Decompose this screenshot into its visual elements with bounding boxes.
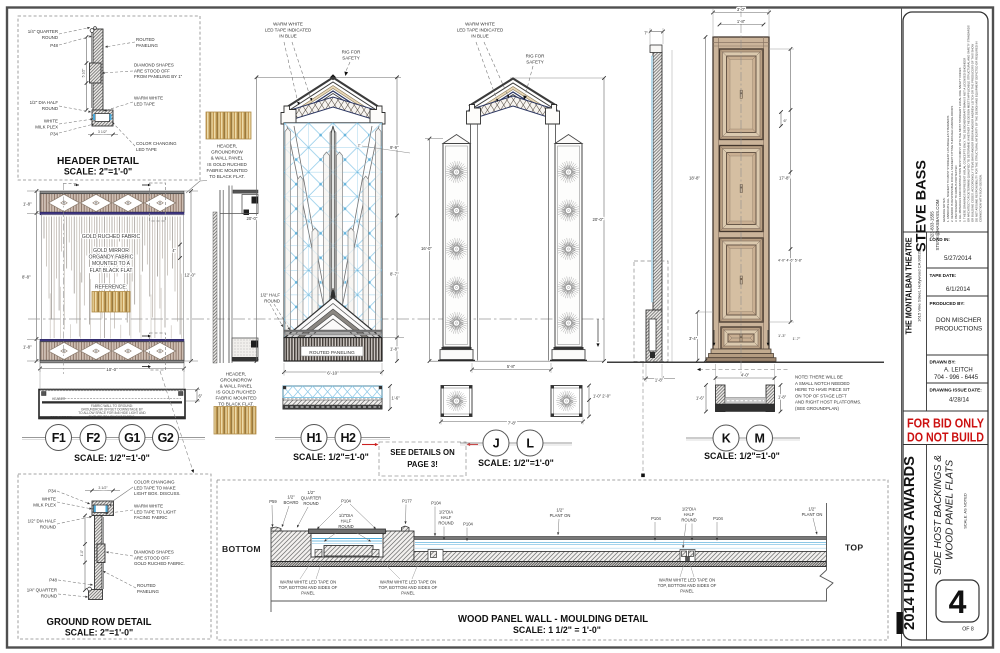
svg-text:1'-3": 1'-3"	[778, 333, 786, 338]
svg-text:WARM WHITE LED TAPE ON: WARM WHITE LED TAPE ON	[280, 580, 336, 585]
svg-text:ORGANDY FABRIC: ORGANDY FABRIC	[89, 255, 134, 261]
svg-text:P59: P59	[269, 499, 277, 504]
svg-text:WHITE: WHITE	[44, 119, 58, 124]
svg-text:ROUND: ROUND	[264, 298, 280, 303]
svg-text:TOP, BOTTOM AND SIDES OF: TOP, BOTTOM AND SIDES OF	[658, 583, 717, 588]
svg-text:TOP, BOTTOM AND SIDES OF: TOP, BOTTOM AND SIDES OF	[379, 585, 438, 590]
svg-text:8'-7": 8'-7"	[390, 272, 399, 277]
svg-text:WARM WHITE: WARM WHITE	[134, 504, 163, 509]
svg-text:DO NOT BUILD: DO NOT BUILD	[907, 430, 984, 445]
svg-text:ROUTED: ROUTED	[136, 37, 155, 42]
svg-text:3 1/2": 3 1/2"	[98, 130, 108, 134]
svg-text:K: K	[722, 431, 731, 445]
svg-text:P48: P48	[49, 578, 57, 583]
svg-text:PANELING: PANELING	[136, 43, 158, 48]
svg-text:ROUND: ROUND	[41, 593, 57, 598]
svg-text:1'-6": 1'-6"	[696, 396, 705, 401]
svg-text:TO BLACK FLAT.: TO BLACK FLAT.	[209, 174, 245, 179]
svg-text:PLANT ON: PLANT ON	[550, 513, 571, 518]
svg-text:FLAT BLACK FLAT: FLAT BLACK FLAT	[90, 268, 133, 274]
svg-text:PRODUCED BY:: PRODUCED BY:	[930, 301, 966, 306]
svg-text:DRAWN BY:: DRAWN BY:	[930, 360, 957, 365]
svg-text:WARM WHITE: WARM WHITE	[465, 22, 495, 27]
svg-text:4'-0" 4'-6" 5'-8": 4'-0" 4'-6" 5'-8"	[778, 259, 803, 263]
svg-text:7'-8": 7'-8"	[508, 420, 517, 425]
svg-text:ARE STOOD OFF: ARE STOOD OFF	[134, 555, 170, 560]
svg-text:5'-8": 5'-8"	[507, 364, 516, 369]
svg-text:PLANT ON: PLANT ON	[802, 512, 823, 517]
svg-text:J: J	[493, 436, 500, 450]
svg-text:9'-9": 9'-9"	[390, 145, 399, 150]
svg-text:HEADER,: HEADER,	[217, 144, 237, 149]
svg-text:1/2"DIA: 1/2"DIA	[439, 510, 453, 515]
svg-text:ROUND: ROUND	[438, 521, 453, 526]
svg-text:PANEL: PANEL	[301, 591, 315, 596]
svg-text:ROUND: ROUND	[40, 524, 56, 529]
svg-text:SCALE: 2"=1'-0": SCALE: 2"=1'-0"	[64, 167, 132, 177]
svg-text:TOP: TOP	[845, 543, 863, 553]
svg-text:1/2": 1/2"	[808, 507, 816, 512]
svg-text:SCALE: 1/2"=1'-0": SCALE: 1/2"=1'-0"	[293, 452, 369, 462]
svg-text:2014 HUADING AWARDS: 2014 HUADING AWARDS	[901, 456, 918, 630]
svg-text:HALF: HALF	[341, 519, 352, 524]
svg-text:ARE STOOD OFF: ARE STOOD OFF	[134, 68, 170, 73]
svg-text:1'-8": 1'-8"	[23, 345, 32, 350]
svg-text:2': 2'	[358, 144, 361, 148]
svg-text:SEE DETAILS ON: SEE DETAILS ON	[390, 448, 455, 457]
svg-text:ROUND: ROUND	[42, 35, 58, 40]
svg-text:WARM WHITE LED TAPE ON: WARM WHITE LED TAPE ON	[659, 578, 715, 583]
svg-text:IS GOLD RUCHED: IS GOLD RUCHED	[207, 162, 247, 167]
svg-text:QUARTER: QUARTER	[301, 496, 321, 501]
svg-text:TAPE DATE:: TAPE DATE:	[930, 273, 957, 278]
svg-text:SIDE HOST BACKINGS &: SIDE HOST BACKINGS &	[932, 455, 944, 575]
svg-text:3 1/2": 3 1/2"	[98, 486, 108, 490]
svg-text:P34: P34	[50, 132, 58, 137]
svg-text:1/2" HALF: 1/2" HALF	[260, 293, 280, 298]
svg-text:WARM WHITE LED TAPE ON: WARM WHITE LED TAPE ON	[380, 580, 436, 585]
svg-text:THE MONTALBAN THEATRE: THE MONTALBAN THEATRE	[904, 237, 914, 334]
svg-text:GROUNDROW: GROUNDROW	[211, 150, 243, 155]
svg-text:1/4" QUARTER: 1/4" QUARTER	[28, 29, 58, 34]
svg-text:CONNECTION WITH SUCH DESIGN.: CONNECTION WITH SUCH DESIGN.	[978, 174, 982, 222]
svg-text:P104: P104	[431, 501, 441, 506]
svg-text:1'-7": 1'-7"	[793, 336, 801, 341]
svg-text:G2: G2	[158, 431, 174, 445]
svg-text:A SMALL NOTCH NEEDED: A SMALL NOTCH NEEDED	[795, 381, 850, 386]
svg-text:COLOR CHANGING: COLOR CHANGING	[134, 480, 175, 485]
svg-text:ROUND: ROUND	[303, 501, 318, 506]
svg-text:P104: P104	[651, 516, 661, 521]
svg-text:10'-0": 10'-0"	[106, 367, 118, 372]
svg-text:GOLD RUCHED FABRIC: GOLD RUCHED FABRIC	[82, 234, 141, 240]
svg-text:SAFETY: SAFETY	[342, 56, 360, 61]
svg-text:GROUNDROW: GROUNDROW	[220, 378, 252, 383]
svg-text:WOOD PANEL FLATS: WOOD PANEL FLATS	[944, 460, 956, 560]
svg-text:NOTE! THERE WILL BE: NOTE! THERE WILL BE	[795, 375, 843, 380]
svg-text:4": 4"	[172, 248, 176, 253]
svg-text:LED TAPE INDICATED: LED TAPE INDICATED	[265, 28, 312, 33]
svg-text:HALF: HALF	[441, 515, 452, 520]
svg-text:20'-0": 20'-0"	[593, 217, 604, 222]
svg-text:OF 8: OF 8	[962, 627, 974, 633]
svg-text:323-833-1555: 323-833-1555	[930, 211, 935, 239]
svg-text:1/2": 1/2"	[307, 490, 315, 495]
svg-text:RIG FOR: RIG FOR	[526, 54, 545, 59]
svg-text:4/28/14: 4/28/14	[949, 398, 970, 404]
svg-text:1'-6": 1'-6"	[392, 396, 401, 401]
svg-text:6": 6"	[784, 118, 788, 123]
svg-text:WOOD PANEL WALL - MOULDING DET: WOOD PANEL WALL - MOULDING DETAIL	[458, 613, 649, 625]
svg-text:GOLD RUCHED FABRIC.: GOLD RUCHED FABRIC.	[134, 561, 185, 566]
svg-text:4: 4	[949, 584, 967, 620]
svg-text:DRAWING ISSUE DATE:: DRAWING ISSUE DATE:	[930, 388, 983, 393]
svg-text:1/4" QUARTER: 1/4" QUARTER	[27, 588, 57, 593]
svg-text:P34: P34	[48, 489, 56, 494]
svg-text:STEVE BASS: STEVE BASS	[913, 160, 929, 252]
svg-text:12'-0": 12'-0"	[185, 273, 196, 278]
svg-text:DIAMOND SHAPES: DIAMOND SHAPES	[134, 63, 174, 68]
svg-text:704 - 996 - 6445: 704 - 996 - 6445	[934, 375, 979, 381]
svg-text:LOAD IN:: LOAD IN:	[930, 237, 951, 242]
svg-text:ROUTED PANELING: ROUTED PANELING	[309, 350, 355, 356]
svg-text:MILK PLEX: MILK PLEX	[35, 124, 58, 129]
svg-text:HALF: HALF	[684, 512, 695, 517]
svg-text:1'-8": 1'-8"	[390, 347, 399, 352]
svg-text:LIGHT BOX. DISCUSS.: LIGHT BOX. DISCUSS.	[134, 491, 181, 496]
svg-text:ROUND: ROUND	[681, 518, 696, 523]
svg-text:HEADER DETAIL: HEADER DETAIL	[57, 155, 140, 167]
svg-text:LED TAPE TO MAKE: LED TAPE TO MAKE	[134, 485, 176, 490]
svg-text:BOARD: BOARD	[284, 500, 299, 505]
svg-text:BOTTOM: BOTTOM	[222, 544, 261, 554]
svg-text:SCALE: 1/2"=1'-0": SCALE: 1/2"=1'-0"	[478, 458, 554, 468]
svg-text:3'-0": 3'-0"	[737, 7, 746, 12]
svg-text:LED TAPE TO LIGHT: LED TAPE TO LIGHT	[134, 509, 176, 514]
svg-text:17'-8": 17'-8"	[779, 176, 790, 181]
svg-text:H1: H1	[307, 431, 323, 445]
svg-text:WHITE: WHITE	[42, 497, 56, 502]
svg-text:1'-8": 1'-8"	[778, 395, 787, 400]
svg-text:TO BLACK FLAT.: TO BLACK FLAT.	[218, 402, 254, 407]
svg-text:18'-8": 18'-8"	[689, 176, 700, 181]
svg-text:WARM WHITE: WARM WHITE	[134, 96, 163, 101]
svg-text:20'-0": 20'-0"	[247, 216, 258, 221]
svg-text:P48: P48	[50, 43, 58, 48]
svg-text:6": 6"	[199, 394, 203, 399]
svg-text:P104: P104	[463, 522, 473, 527]
svg-text:16'-0": 16'-0"	[421, 246, 432, 251]
svg-text:COLOR CHANGING: COLOR CHANGING	[136, 141, 177, 146]
svg-text:FOR BID ONLY: FOR BID ONLY	[907, 416, 984, 431]
svg-text:7": 7"	[644, 31, 648, 36]
svg-text:LED TAPE: LED TAPE	[136, 147, 157, 152]
svg-text:5 1/2": 5 1/2"	[82, 68, 86, 78]
svg-text:1/2" DIA HALF: 1/2" DIA HALF	[30, 100, 59, 105]
svg-text:1'-8": 1'-8"	[23, 202, 32, 207]
svg-text:SCALE: AS NOTED: SCALE: AS NOTED	[963, 493, 968, 529]
svg-text:4'-0": 4'-0"	[741, 372, 750, 377]
svg-text:PANELING: PANELING	[137, 589, 159, 594]
svg-text:WARM WHITE: WARM WHITE	[273, 22, 303, 27]
svg-text:SCALE: 1/2"=1'-0": SCALE: 1/2"=1'-0"	[74, 453, 150, 463]
svg-text:RIG FOR: RIG FOR	[342, 50, 361, 55]
svg-text:1'-0" 2'-0": 1'-0" 2'-0"	[593, 394, 611, 399]
svg-text:GROUND ROW DETAIL: GROUND ROW DETAIL	[47, 616, 153, 628]
svg-text:FROM PANELING BY 1": FROM PANELING BY 1"	[134, 74, 183, 79]
svg-text:FABRIC MOUNTED: FABRIC MOUNTED	[215, 396, 257, 401]
svg-text:PRODUCTIONS: PRODUCTIONS	[935, 326, 982, 333]
svg-text:G1: G1	[124, 431, 140, 445]
svg-text:PAGE 3!: PAGE 3!	[407, 460, 438, 469]
svg-text:P104: P104	[713, 516, 723, 521]
svg-text:PANEL: PANEL	[401, 591, 415, 596]
svg-text:ROUND: ROUND	[338, 524, 353, 529]
svg-text:ON TOP OF STAGE LEFT: ON TOP OF STAGE LEFT	[795, 393, 847, 398]
svg-text:1/2"DIA: 1/2"DIA	[339, 513, 353, 518]
svg-text:6/1/2014: 6/1/2014	[946, 286, 971, 293]
svg-text:REFERENCE:: REFERENCE:	[95, 285, 127, 291]
svg-text:DIAMOND SHAPES: DIAMOND SHAPES	[134, 550, 174, 555]
svg-text:ROUND: ROUND	[42, 106, 58, 111]
svg-text:L: L	[526, 436, 534, 450]
svg-text:A. LEITCH: A. LEITCH	[944, 368, 973, 374]
svg-text:8'-8": 8'-8"	[22, 275, 31, 280]
svg-text:DON MISCHER: DON MISCHER	[936, 317, 982, 324]
svg-text:P177: P177	[402, 499, 412, 504]
svg-text:F2: F2	[86, 431, 100, 445]
svg-text:MOUNTED TO A: MOUNTED TO A	[92, 261, 131, 267]
svg-text:HERE TO HAVE PIECE SIT: HERE TO HAVE PIECE SIT	[795, 387, 850, 392]
svg-text:IN BLUE: IN BLUE	[279, 34, 297, 39]
svg-text:6'-10": 6'-10"	[327, 371, 339, 376]
svg-text:(SEE GROUNDPLAN): (SEE GROUNDPLAN)	[795, 406, 839, 411]
svg-text:PANEL: PANEL	[680, 589, 694, 594]
svg-text:IS GOLD RUCHED: IS GOLD RUCHED	[216, 390, 256, 395]
svg-text:SCALE: 1 1/2" = 1'-0": SCALE: 1 1/2" = 1'-0"	[513, 625, 601, 635]
svg-text:1/2": 1/2"	[556, 508, 564, 513]
svg-text:F1: F1	[52, 431, 66, 445]
svg-text:ROUTED: ROUTED	[137, 583, 156, 588]
svg-text:TOP, BOTTOM AND SIDES OF: TOP, BOTTOM AND SIDES OF	[279, 585, 338, 590]
svg-text:1/2" DIA HALF: 1/2" DIA HALF	[28, 519, 57, 524]
svg-text:3'-4": 3'-4"	[689, 336, 698, 341]
svg-text:1/2"DIA: 1/2"DIA	[682, 507, 696, 512]
svg-text:AND RIGHT HOST PLATFORMS.: AND RIGHT HOST PLATFORMS.	[795, 400, 861, 405]
svg-text:P104: P104	[341, 499, 351, 504]
svg-text:LED TAPE: LED TAPE	[134, 101, 155, 106]
svg-text:SAFETY: SAFETY	[526, 60, 544, 65]
svg-text:M: M	[755, 431, 765, 445]
svg-text:STEVE@HASBASS.COM: STEVE@HASBASS.COM	[935, 199, 940, 250]
svg-text:FACING FABRIC: FACING FABRIC	[134, 515, 167, 520]
svg-text:1'-8": 1'-8"	[655, 378, 664, 383]
svg-text:FABRIC MOUNTED: FABRIC MOUNTED	[206, 168, 248, 173]
svg-text:LED TAPE INDICATED: LED TAPE INDICATED	[457, 28, 504, 33]
svg-text:GOLD MIRROR: GOLD MIRROR	[93, 248, 129, 254]
svg-text:H2: H2	[341, 431, 357, 445]
svg-text:HEADER,: HEADER,	[226, 372, 246, 377]
svg-text:1'-0": 1'-0"	[80, 550, 84, 556]
svg-text:5/27/2014: 5/27/2014	[944, 255, 972, 262]
svg-text:1615 Vine Street, Hollywood CA: 1615 Vine Street, Hollywood CA 90028	[918, 250, 922, 322]
svg-text:SCALE: 1/2"=1'-0": SCALE: 1/2"=1'-0"	[704, 451, 780, 461]
svg-text:SCALE: 2"=1'-0": SCALE: 2"=1'-0"	[65, 628, 133, 638]
svg-text:1/2": 1/2"	[287, 495, 295, 500]
svg-text:& WALL PANEL: & WALL PANEL	[211, 156, 244, 161]
svg-text:1'-8": 1'-8"	[737, 19, 746, 24]
svg-text:IN BLUE: IN BLUE	[471, 34, 489, 39]
svg-text:MILK PLEX: MILK PLEX	[33, 502, 56, 507]
svg-text:& WALL PANEL: & WALL PANEL	[220, 384, 253, 389]
